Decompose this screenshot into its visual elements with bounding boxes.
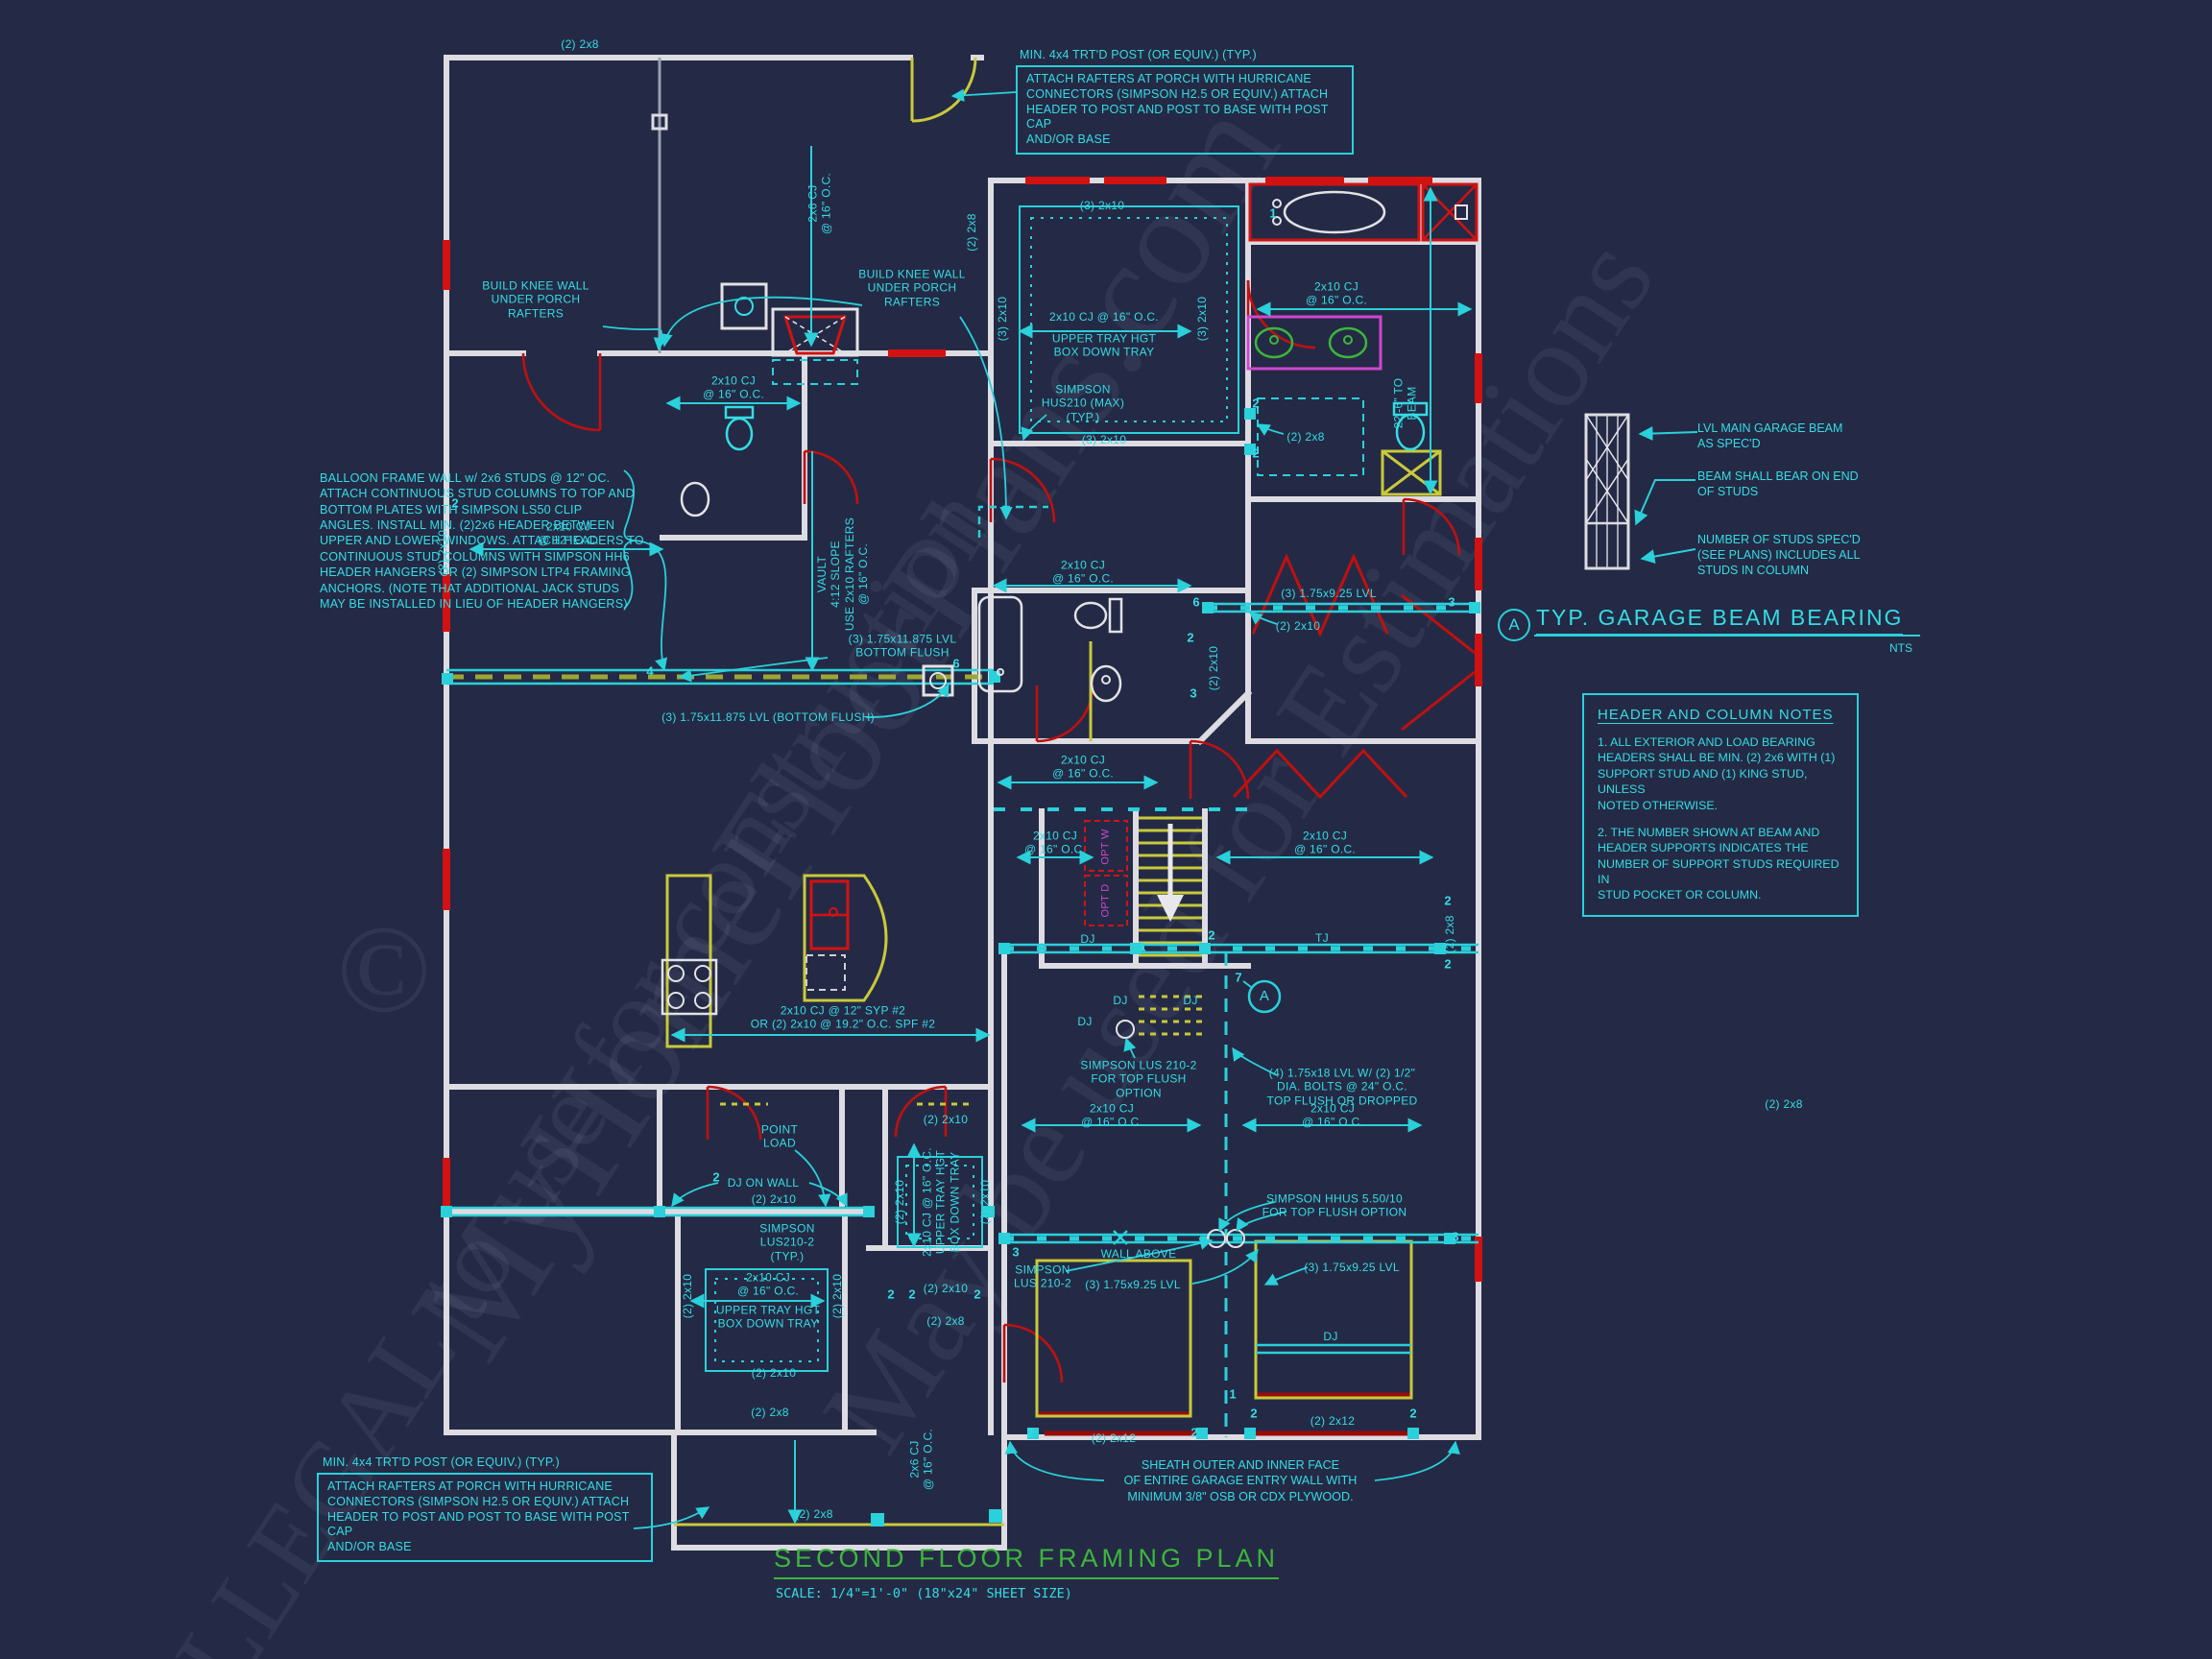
plan-label: BUILD KNEE WALL UNDER PORCH RAFTERS: [858, 267, 965, 308]
garage-headers: [1037, 1395, 1411, 1433]
plan-label: (3) 2x10: [996, 297, 1009, 341]
stud-count-label: 2: [1026, 1426, 1033, 1440]
plan-label: DJ: [1080, 932, 1094, 946]
balloon-frame-note: BALLOON FRAME WALL w/ 2x6 STUDS @ 12" OC…: [320, 470, 646, 612]
plan-label: (2) 2x10: [924, 1282, 968, 1295]
plan-label: 2x10 CJ @ 16" O.C.: [1052, 559, 1114, 587]
stud-count-label: 3: [1190, 686, 1196, 701]
sheet-title: SECOND FLOOR FRAMING PLAN: [774, 1544, 1279, 1579]
plan-label: A: [1260, 988, 1269, 1005]
stud-count-label: 7: [1235, 971, 1241, 985]
stud-count-label: 2: [1187, 631, 1193, 645]
plan-label: (2) 2x12: [1092, 1431, 1136, 1445]
plan-label: POINT LOAD: [761, 1123, 798, 1151]
plan-label: (2) 2x8: [926, 1314, 964, 1328]
stud-count-label: 6: [1192, 595, 1199, 610]
plan-label: SIMPSON LUS210-2 (TYP.): [759, 1221, 814, 1262]
detail-label-bearing: BEAM SHALL BEAR ON END OF STUDS: [1697, 469, 1859, 499]
plan-label: 2x10 CJ @ 16" O.C.: [1302, 1102, 1363, 1130]
plan-label: (2) 2x10: [924, 1113, 968, 1126]
stud-count-label: 2: [908, 1287, 915, 1302]
plan-label: DJ: [1113, 994, 1127, 1007]
plan-label: DJ: [1077, 1015, 1092, 1028]
stud-count-label: 2: [1444, 894, 1451, 908]
stud-count-label: 2: [1252, 446, 1259, 461]
plan-label: BUILD KNEE WALL UNDER PORCH RAFTERS: [482, 278, 589, 320]
plan-label: 2x10 CJ @ 16" O.C. UPPER TRAY HGT BOX DO…: [920, 1147, 961, 1257]
plan-label: (2) 2x10: [681, 1274, 694, 1318]
plan-label: SIMPSON HHUS 5.50/10 FOR TOP FLUSH OPTIO…: [1262, 1192, 1407, 1220]
detail-title: TYP. GARAGE BEAM BEARING: [1536, 605, 1903, 636]
plan-label: (2) 2x12: [1310, 1414, 1355, 1428]
plan-label: 2x10 CJ @ 16" O.C.: [1052, 754, 1114, 781]
plan-label: (2) 2x8: [1286, 430, 1324, 444]
plan-label: 2x10 CJ @ 16" O.C.: [1306, 280, 1367, 308]
plan-label: 2x10 CJ @ 16" O.C.: [1294, 829, 1356, 857]
plan-label: (3) 1.75x11.875 LVL BOTTOM FLUSH: [849, 633, 957, 661]
plan-label: 2x10 CJ @ 16" O.C.: [1049, 310, 1159, 324]
plan-label: (2) 2x8: [1443, 915, 1456, 952]
stud-count-label: 1: [1139, 940, 1145, 954]
plan-label: 2x10 CJ @ 12" SYP #2 OR (2) 2x10 @ 19.2"…: [751, 1004, 935, 1032]
header-note-2: 2. THE NUMBER SHOWN AT BEAM AND HEADER S…: [1598, 825, 1843, 903]
header-notes-title: HEADER AND COLUMN NOTES: [1598, 707, 1843, 723]
porch-note-top-box: ATTACH RAFTERS AT PORCH WITH HURRICANE C…: [1016, 65, 1354, 155]
stud-count-label: 4: [646, 664, 653, 679]
plan-label: DJ: [1183, 994, 1197, 1007]
stud-count-label: 3: [1012, 1245, 1019, 1260]
stud-count-label: 1: [1229, 1387, 1236, 1402]
stud-count-label: 2: [1208, 928, 1214, 943]
plan-label: (3) 2x10: [1195, 297, 1209, 341]
header-note-1: 1. ALL EXTERIOR AND LOAD BEARING HEADERS…: [1598, 734, 1843, 813]
stud-count-label: 2: [1250, 1407, 1257, 1421]
stud-count-label: 1: [1269, 206, 1276, 221]
stud-count-label: 2: [1190, 1426, 1197, 1440]
plan-label: (2) 2x8: [1765, 1097, 1802, 1111]
plan-label: 2x10 CJ @ 16" O.C.: [1081, 1102, 1142, 1130]
plan-label: OPT W: [1099, 829, 1112, 864]
stud-count-label: 2: [974, 1287, 980, 1302]
plan-label: (3) 2x10: [1080, 199, 1124, 212]
porch-note-bottom-title: MIN. 4x4 TRT'D POST (OR EQUIV.) (TYP.): [323, 1455, 560, 1469]
plan-label: 2x10 CJ @ 16" O.C.: [703, 374, 764, 402]
plan-label: (2) 2x8: [751, 1406, 788, 1419]
plan-label: 22'-6" TO BEAM: [1392, 378, 1420, 429]
plan-label: DJ ON WALL: [728, 1176, 800, 1190]
stud-count-label: 2: [1444, 957, 1451, 972]
plan-label: OPT D: [1099, 884, 1112, 918]
detail-label-studs: NUMBER OF STUDS SPEC'D (SEE PLANS) INCLU…: [1697, 532, 1861, 578]
plan-label: (2) 2x10: [752, 1192, 796, 1206]
plan-label: (3) 1.75x9.25 LVL: [1281, 587, 1377, 600]
stud-count-label: 6: [952, 657, 959, 671]
plan-label: SIMPSON LUS 210-2: [1014, 1263, 1071, 1291]
plan-label: UPPER TRAY HGT BOX DOWN TRAY: [1052, 332, 1156, 360]
plan-label: UPPER TRAY HGT BOX DOWN TRAY: [716, 1304, 820, 1332]
plan-label: (2) 2x8: [561, 37, 598, 51]
stud-count-label: 2: [1252, 397, 1259, 411]
sheath-note: SHEATH OUTER AND INNER FACE OF ENTIRE GA…: [1124, 1457, 1358, 1504]
stud-count-label: 2: [712, 1170, 719, 1185]
plan-label: (2) 2x10: [893, 1180, 906, 1224]
plan-label: SIMPSON LUS 210-2 FOR TOP FLUSH OPTION: [1080, 1058, 1196, 1099]
framing-plan-sheet: MyHomeFloorPlans.comMay be used for Esti…: [0, 0, 2212, 1659]
plan-label: VAULT 4:12 SLOPE USE 2x10 RAFTERS @ 16" …: [815, 517, 871, 631]
plan-label: (2) 2x10: [830, 1274, 844, 1318]
header-column-notes: HEADER AND COLUMN NOTES 1. ALL EXTERIOR …: [1582, 693, 1859, 917]
plan-label: (3) 1.75x9.25 LVL: [1085, 1278, 1181, 1291]
detail-nts: NTS: [1889, 641, 1912, 655]
plan-label: (2) 2x10: [752, 1366, 796, 1380]
plan-label: (3) 2x10: [1082, 433, 1126, 446]
detail-marker-circle: A: [1498, 609, 1530, 641]
sheet-scale-note: SCALE: 1/4"=1'-0" (18"x24" SHEET SIZE): [776, 1586, 1072, 1601]
stud-count-label: 3: [1448, 595, 1455, 610]
plan-label: TJ: [1315, 931, 1329, 945]
detail-label-beam: LVL MAIN GARAGE BEAM AS SPEC'D: [1697, 421, 1842, 451]
plan-label: WALL ABOVE: [1101, 1247, 1177, 1261]
plan-label: 2x10 CJ @ 16" O.C.: [1024, 829, 1086, 857]
plan-label: SIMPSON HUS210 (MAX) (TYP.): [1042, 382, 1124, 423]
knee-wall-line: [653, 58, 666, 353]
porch-note-bottom-box: ATTACH RAFTERS AT PORCH WITH HURRICANE C…: [317, 1473, 653, 1562]
plan-label: DJ: [1323, 1330, 1337, 1343]
plan-label: (2) 2x8: [965, 213, 978, 251]
plan-label: 2x6 CJ @ 16" O.C.: [806, 173, 834, 234]
porch-note-top-title: MIN. 4x4 TRT'D POST (OR EQUIV.) (TYP.): [1020, 48, 1257, 61]
plan-label: (2) 2x10: [1207, 646, 1220, 690]
stud-count-label: 3: [1452, 1230, 1458, 1244]
stud-count-label: 2: [1409, 1407, 1416, 1421]
plan-label: (3) 1.75x9.25 LVL: [1304, 1261, 1400, 1274]
plan-label: 2x6 CJ @ 16" O.C.: [908, 1429, 936, 1490]
plan-label: (2) 2x10: [978, 1180, 992, 1224]
plan-label: 2x10 CJ @ 16" O.C.: [737, 1271, 799, 1299]
plan-label: (2) 2x8: [795, 1507, 832, 1521]
plan-label: (3) 1.75x11.875 LVL (BOTTOM FLUSH): [661, 710, 875, 724]
stud-count-label: 2: [887, 1287, 894, 1302]
plan-label: (2) 2x10: [1276, 619, 1320, 633]
